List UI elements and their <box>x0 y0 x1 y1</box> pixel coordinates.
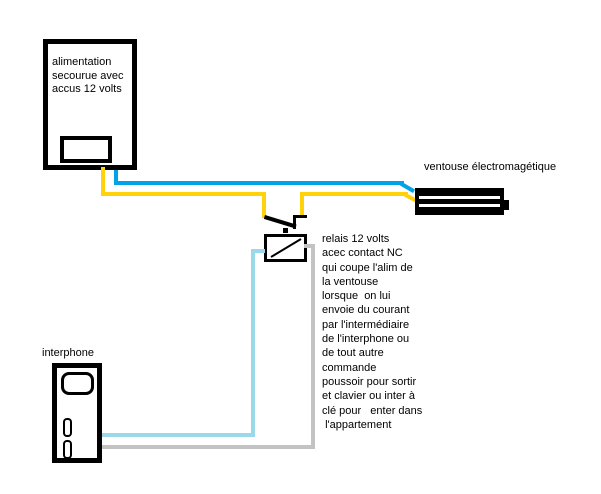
interphone-label: interphone <box>42 347 94 361</box>
nc-contact-pivot-dot <box>283 228 288 233</box>
interphone-button <box>63 418 72 437</box>
ventouse-label: ventouse électromagétique <box>424 161 556 175</box>
ventouse-body <box>415 188 504 215</box>
gray-wire-run <box>102 445 315 449</box>
nc-contact-blade <box>264 215 297 228</box>
ventouse-stripe <box>419 196 500 199</box>
relay-coil-box <box>264 234 307 262</box>
relay-note-text: relais 12 volts acec contact NC qui coup… <box>322 232 452 432</box>
yellow-wire-contact-out <box>300 195 304 217</box>
yellow-wire-run-left <box>101 192 266 196</box>
lightblue-wire-drop <box>251 249 255 437</box>
interphone-speaker-grille <box>61 372 94 395</box>
blue-wire-run <box>114 181 404 185</box>
lightblue-wire-run <box>102 433 255 437</box>
yellow-wire-run-right <box>300 192 408 196</box>
ventouse-side-tab <box>504 200 509 210</box>
nc-contact-terminal-side <box>293 215 296 229</box>
power-supply-terminal-block <box>60 136 112 163</box>
ventouse-stripe <box>419 204 500 207</box>
relay-coil-diagonal <box>267 237 304 259</box>
gray-wire-drop <box>311 244 315 449</box>
wiring-diagram-canvas: alimentation secourue avec accus 12 volt… <box>0 0 601 494</box>
interphone-button <box>63 440 72 459</box>
power-supply-label: alimentation secourue avec accus 12 volt… <box>52 56 134 97</box>
